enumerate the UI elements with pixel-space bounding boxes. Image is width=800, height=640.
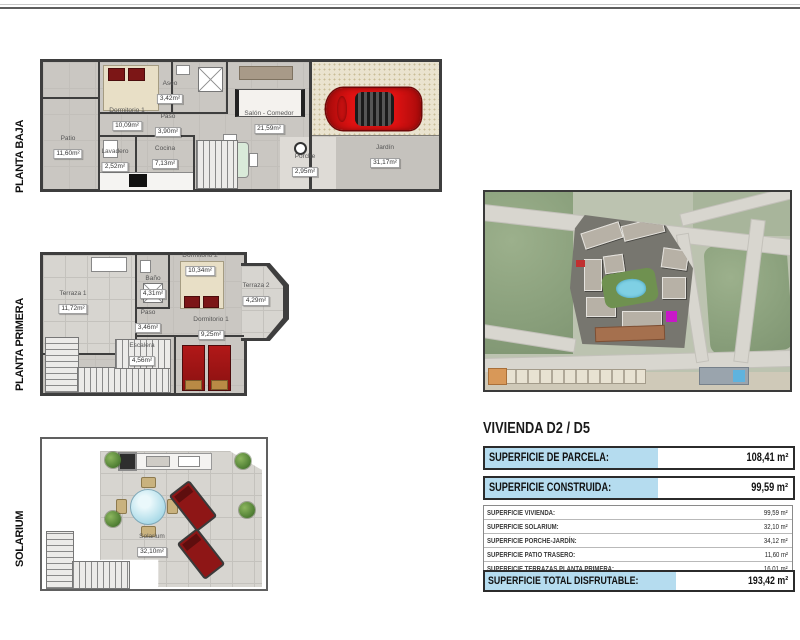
room-label-paso: Paso 3,90m² (155, 113, 181, 139)
chair (141, 477, 156, 488)
map-pool-small (733, 370, 745, 382)
parcela-value: 108,41 m² (658, 448, 793, 468)
table-row: SUPERFICIE VIVIENDA: 99,59 m² (484, 506, 792, 520)
plan-label-planta-baja: PLANTA BAJA (14, 115, 26, 197)
room-label-solarium: Solarium 32,10m² (137, 533, 167, 559)
stairs (77, 367, 171, 393)
room-label-dormitorio1-p1: Dormitorio 1 9,25m² (193, 316, 228, 342)
table-row: SUPERFICIE PATIO TRASERO: 11,60 m² (484, 548, 792, 562)
surface-detail-table: SUPERFICIE VIVIENDA: 99,59 m² SUPERFICIE… (483, 505, 793, 576)
plant-icon (239, 502, 255, 518)
table-row: SUPERFICIE PORCHE-JARDÍN: 34,12 m² (484, 534, 792, 548)
page-top-rule-light (0, 4, 800, 5)
room-label-salon-comedor: Salón - Comedor 21,59m² (244, 110, 293, 136)
wall (193, 135, 195, 189)
total-label: SUPERFICIE TOTAL DISFRUTABLE: (485, 572, 676, 590)
stairs (45, 337, 79, 393)
plant-icon (235, 453, 251, 469)
map-building (584, 259, 602, 291)
unit-title: VIVIENDA D2 / D5 (483, 420, 617, 438)
stairs (72, 561, 130, 589)
map-roof-row (596, 326, 664, 341)
floorplan-planta-baja: Dormitorio 1 10,09m² Aseo 3,42m² Paso 3,… (40, 59, 442, 192)
chair (249, 153, 258, 167)
wall (174, 337, 176, 393)
table-row: SUPERFICIE SOLARIUM: 32,10 m² (484, 520, 792, 534)
room-label-aseo: Aseo 3,42m² (157, 80, 183, 106)
room-label-terraza2: Terraza 2 4,29m² (242, 282, 269, 308)
wall (168, 255, 170, 307)
map-building (489, 369, 506, 384)
room-label-jardin: Jardín 31,17m² (370, 144, 400, 170)
tv-unit (239, 66, 293, 80)
shower (198, 67, 223, 92)
stairs (196, 140, 238, 189)
map-building (580, 221, 623, 250)
bed-pillow (211, 380, 228, 390)
page-top-rule (0, 7, 800, 9)
room-label-dormitorio2: Dormitorio 2 10,34m² (182, 252, 217, 278)
brochure-page: PLANTA BAJA (0, 0, 800, 640)
aerial-site-map (483, 190, 792, 392)
map-building-row (505, 370, 645, 383)
map-building (662, 277, 686, 299)
room-label-cocina: Cocina 7,13m² (152, 145, 178, 171)
floorplan-planta-primera: Terraza 1 11,72m² Baño 4,31m² Dormitorio… (40, 252, 247, 396)
total-value: 193,42 m² (676, 572, 793, 590)
wall (226, 62, 228, 114)
room-label-lavadero: Lavadero 2,52m² (101, 148, 128, 174)
room-label-porche: Porche 2,95m² (292, 153, 318, 179)
plant-icon (105, 511, 121, 527)
grill (146, 456, 170, 467)
round-table (130, 489, 166, 525)
wardrobe (91, 257, 127, 272)
map-building (621, 216, 666, 242)
room-label-patio: Patio 11,60m² (53, 135, 82, 161)
construida-row: SUPERFICIE CONSTRUIDA: 99,59 m² (483, 476, 795, 500)
floorplan-solarium: Solarium 32,10m² (40, 437, 268, 591)
wall (98, 62, 100, 189)
room-label-banio: Baño 4,31m² (140, 275, 166, 301)
bed-pillow (184, 296, 200, 308)
lounger-pillow (182, 533, 201, 550)
stove (129, 174, 147, 187)
fence-line (312, 135, 439, 136)
parcela-label: SUPERFICIE DE PARCELA: (485, 448, 658, 468)
plan-label-solarium: SOLARIUM (14, 503, 26, 575)
total-row: SUPERFICIE TOTAL DISFRUTABLE: 193,42 m² (483, 570, 795, 592)
bed-pillow (185, 380, 202, 390)
bed-pillow (128, 68, 145, 81)
room-label-dormitorio1: Dormitorio 1 10,09m² (109, 107, 144, 133)
sink (178, 456, 200, 467)
bed-pillow (203, 296, 219, 308)
room-label-paso: Paso 3,46m² (135, 309, 161, 335)
stairs (46, 531, 74, 589)
map-red-marker (576, 260, 585, 267)
toilet (140, 260, 151, 273)
bed-pillow (108, 68, 125, 81)
car-illustration (326, 88, 421, 130)
parcela-row: SUPERFICIE DE PARCELA: 108,41 m² (483, 446, 795, 470)
construida-value: 99,59 m² (658, 478, 793, 498)
wall (43, 97, 100, 99)
room-label-escalera: Escalera 4,56m² (129, 342, 155, 368)
sink (176, 65, 190, 75)
lounger-pillow (174, 485, 193, 502)
plan-label-planta-primera: PLANTA PRIMERA (14, 293, 26, 397)
room-label-terraza1: Terraza 1 11,72m² (58, 290, 87, 316)
plant-icon (105, 452, 121, 468)
construida-label: SUPERFICIE CONSTRUIDA: (485, 478, 658, 498)
map-highlighted-unit (666, 311, 677, 322)
